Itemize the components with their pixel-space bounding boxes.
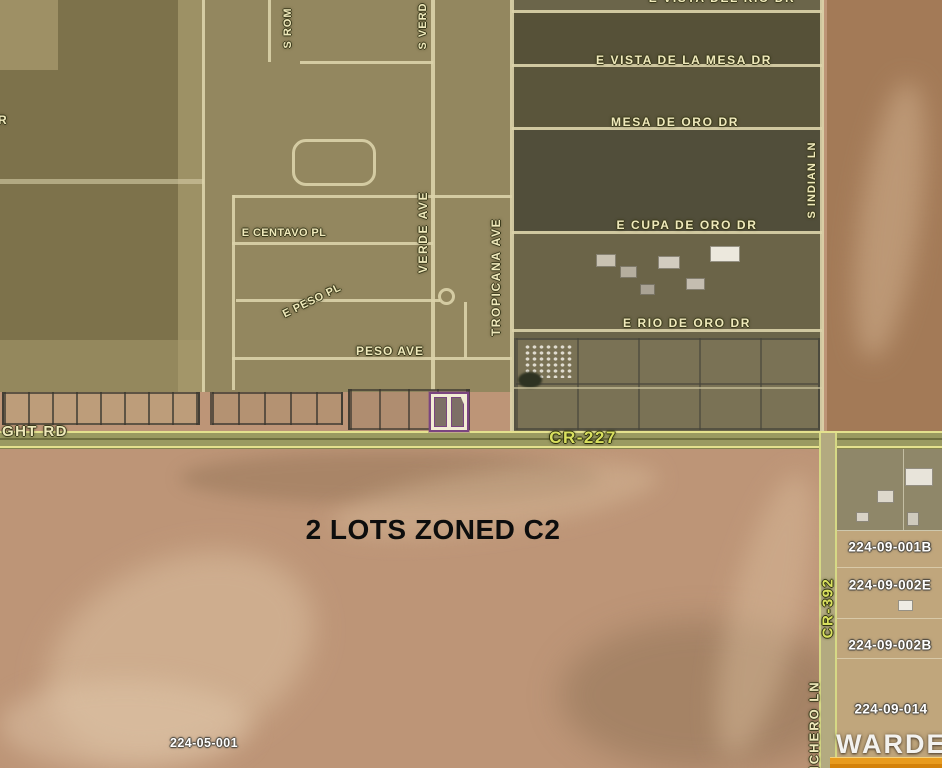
street-label-tropicana-ave: TROPICANA AVE (489, 218, 503, 336)
e-peso-pl-road (236, 299, 440, 302)
street-label-ght-rd: GHT RD (2, 423, 68, 440)
street-label-verde-ave: VERDE AVE (416, 191, 430, 273)
highlighted-lot-2 (451, 397, 464, 427)
building (856, 512, 869, 522)
street-label-e-centavo-pl: E CENTAVO PL (242, 227, 326, 239)
parcel-apn-224-09-014: 224-09-014 (854, 702, 927, 717)
parcel-apn-224-09-001B: 224-09-001B (848, 540, 931, 555)
e-centavo-pl-road (232, 242, 433, 245)
street-label-e-vista-de-la-mesa-dr: E VISTA DE LA MESA DR (596, 53, 772, 67)
parcel-apn-224-09-002B: 224-09-002B (848, 638, 931, 653)
building (596, 254, 616, 267)
satellite-map: E VISTA DEL RIO DR E VISTA DE LA MESA DR… (0, 0, 942, 768)
street-label-nchero-ln: NCHERO LN (807, 680, 822, 768)
farm-field-south-strip (0, 340, 204, 392)
building (710, 246, 740, 262)
parcel-boundary-vertical (903, 449, 904, 530)
building (620, 266, 637, 278)
building (898, 600, 913, 611)
parcel-apn-224-09-002E: 224-09-002E (849, 578, 931, 593)
farm-field-edge-strip (178, 0, 204, 392)
wardex-watermark: WARDEX (836, 729, 942, 760)
street-line (232, 195, 235, 390)
highlighted-lot-1 (434, 397, 447, 427)
parcel-boundary (833, 567, 942, 568)
boundary-street (202, 0, 205, 392)
building (907, 512, 919, 526)
street-label-mesa-de-oro-dr: MESA DE ORO DR (611, 115, 739, 129)
farm-field-topleft (0, 0, 58, 70)
road-label-cr-392: CR-392 (820, 578, 837, 639)
street-label-peso-ave: PESO AVE (356, 344, 424, 358)
s-indian-ln-road (820, 0, 824, 433)
highlighted-lots-outline (429, 392, 469, 432)
s-rom-road (268, 0, 271, 62)
farm-road (0, 179, 204, 184)
tree-blob (518, 372, 542, 388)
building (905, 468, 933, 486)
street-line (233, 195, 512, 198)
building (686, 278, 705, 290)
frontage-lot-row (210, 392, 343, 425)
wardex-watermark-bar (830, 757, 942, 768)
building (640, 284, 655, 295)
building (658, 256, 680, 269)
frontage-lot-row (2, 392, 200, 425)
parcel-boundary (833, 530, 942, 531)
street-label-partial-r: R (0, 113, 8, 127)
parcel-boundary (833, 658, 942, 659)
building (877, 490, 894, 503)
northeast-desert-strip (827, 0, 942, 449)
cr-227-road (0, 431, 942, 449)
street-label-e-vista-del-rio-dr: E VISTA DEL RIO DR (649, 0, 796, 5)
zoning-annotation: 2 LOTS ZONED C2 (306, 514, 561, 546)
street-line (464, 302, 467, 358)
street-label-e-rio-de-oro-dr: E RIO DE ORO DR (623, 316, 751, 330)
block-row (512, 130, 822, 231)
south-desert-region (0, 449, 942, 768)
street-loop (292, 139, 376, 186)
parcel-boundary (833, 618, 942, 619)
street-label-s-indian-ln: S INDIAN LN (806, 142, 818, 219)
e-vista-del-rio-road (512, 10, 822, 13)
street-label-s-rom: S ROM (282, 7, 294, 48)
peso-pl-culdesac (438, 288, 455, 305)
street-label-s-verd: S VERD (417, 3, 429, 50)
road-label-cr-227: CR-227 (549, 428, 617, 448)
parcel-apn-224-05-001: 224-05-001 (170, 736, 238, 750)
street-line (300, 61, 433, 64)
block-row (512, 234, 822, 329)
street-label-e-cupa-de-oro-dr: E CUPA DE ORO DR (617, 218, 758, 232)
street-line (512, 387, 822, 389)
